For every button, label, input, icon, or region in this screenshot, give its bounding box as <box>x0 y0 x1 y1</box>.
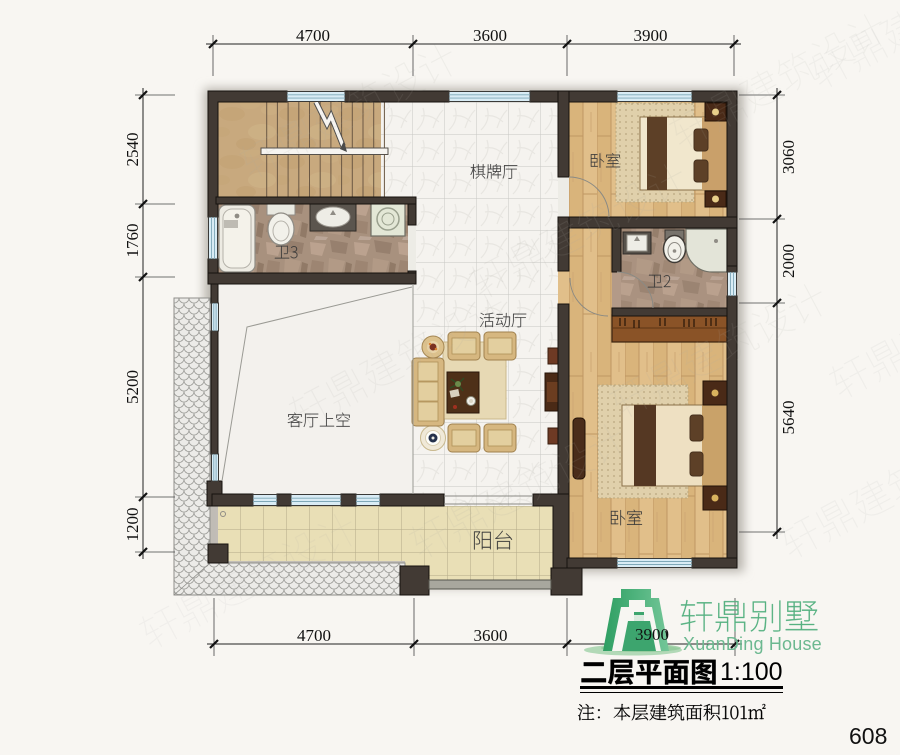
svg-text:1:100: 1:100 <box>720 658 783 686</box>
svg-text:3600: 3600 <box>474 626 508 645</box>
svg-text:5640: 5640 <box>779 401 798 435</box>
svg-text:1760: 1760 <box>123 224 142 258</box>
svg-text:4700: 4700 <box>297 626 331 645</box>
svg-text:608: 608 <box>849 723 887 749</box>
svg-text:2540: 2540 <box>123 133 142 167</box>
svg-text:3060: 3060 <box>779 140 798 174</box>
svg-text:1200: 1200 <box>123 508 142 542</box>
svg-text:2000: 2000 <box>779 244 798 278</box>
svg-text:3900: 3900 <box>635 625 669 644</box>
svg-text:4700: 4700 <box>296 26 330 45</box>
svg-text:3900: 3900 <box>634 26 668 45</box>
svg-text:3600: 3600 <box>473 26 507 45</box>
svg-text:XuanDing House: XuanDing House <box>683 634 822 654</box>
svg-text:5200: 5200 <box>123 370 142 404</box>
